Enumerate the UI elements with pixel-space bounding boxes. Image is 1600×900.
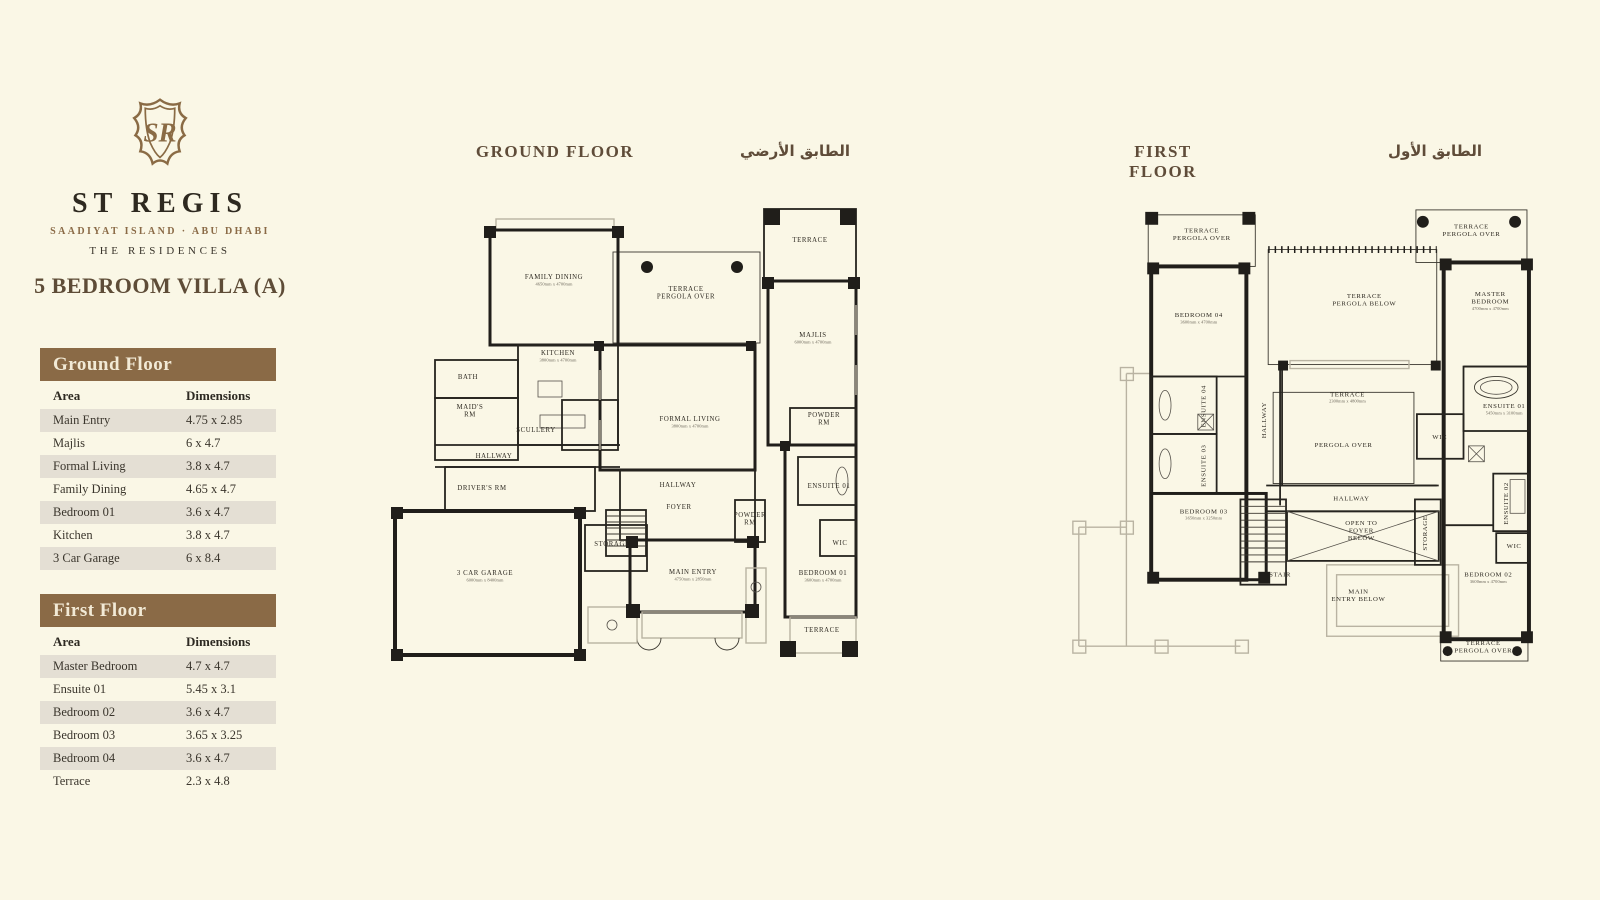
table-title: First Floor xyxy=(40,594,276,627)
room-label: ENSUITE 01 xyxy=(808,483,851,490)
room-label: TERRACEPERGOLA OVER xyxy=(657,286,715,301)
room-label: HALLWAY xyxy=(1261,402,1268,438)
table-row: Bedroom 033.65 x 3.25 xyxy=(40,724,276,747)
ground-floor-plan: FAMILY DINING4650mm x 4700mmTERRACEPERGO… xyxy=(390,195,885,670)
table-row: Family Dining4.65 x 4.7 xyxy=(40,478,276,501)
room-label: ENSUITE 04 xyxy=(1201,385,1208,427)
room-label: ENSUITE 02 xyxy=(1503,482,1510,524)
room-label: STORAGE xyxy=(594,541,629,548)
room-label: SCULLERY xyxy=(516,427,556,434)
area-cell: Ensuite 01 xyxy=(53,678,186,701)
room-label: TERRACE xyxy=(804,627,839,634)
area-cell: Bedroom 03 xyxy=(53,724,186,747)
table-row: Master Bedroom4.7 x 4.7 xyxy=(40,655,276,678)
ground-floor-heading-arabic: الطابق الأرضي xyxy=(730,142,850,160)
room-label: ENSUITE 015450mm x 3100mm xyxy=(1483,403,1525,415)
gf-room-labels: FAMILY DINING4650mm x 4700mmTERRACEPERGO… xyxy=(457,237,851,634)
room-label: DRIVER'S RM xyxy=(457,485,506,492)
room-label: BEDROOM 023600mm x 4700mm xyxy=(1464,572,1512,584)
room-label: PERGOLA OVER xyxy=(1315,442,1373,449)
brand-name: ST REGIS xyxy=(0,188,320,220)
area-cell: Kitchen xyxy=(53,524,186,547)
room-label: MAID'SRM xyxy=(457,404,484,419)
first-floor-heading-arabic: الطابق الأول xyxy=(1382,142,1482,160)
table-body: Master Bedroom4.7 x 4.7Ensuite 015.45 x … xyxy=(40,655,276,793)
table-row: Bedroom 023.6 x 4.7 xyxy=(40,701,276,724)
room-label: MASTERBEDROOM4700mm x 4700mm xyxy=(1471,291,1509,311)
room-label: BATH xyxy=(458,374,478,381)
room-label: HALLWAY xyxy=(660,482,697,489)
col-dimensions: Dimensions xyxy=(186,388,250,404)
area-cell: Master Bedroom xyxy=(53,655,186,678)
room-label: FORMAL LIVING3800mm x 4700mm xyxy=(660,416,721,429)
room-label: KITCHEN3800mm x 4700mm xyxy=(539,350,577,363)
brand-block: SR ST REGIS SAADIYAT ISLAND · ABU DHABI … xyxy=(0,96,320,257)
dimensions-cell: 3.8 x 4.7 xyxy=(186,524,230,547)
table-title: Ground Floor xyxy=(40,348,276,381)
room-label: OPEN TOFOYERBELOW xyxy=(1345,520,1377,542)
dimensions-cell: 4.65 x 4.7 xyxy=(186,478,236,501)
first-floor-heading: FIRST FLOOR xyxy=(1108,142,1218,182)
ground-floor-table: Ground Floor Area Dimensions Main Entry4… xyxy=(40,348,276,570)
dimensions-cell: 6 x 4.7 xyxy=(186,432,220,455)
dimensions-cell: 2.3 x 4.8 xyxy=(186,770,230,793)
first-floor-table: First Floor Area Dimensions Master Bedro… xyxy=(40,594,276,793)
table-row: Kitchen3.8 x 4.7 xyxy=(40,524,276,547)
dimensions-cell: 3.65 x 3.25 xyxy=(186,724,242,747)
ff-walls xyxy=(1148,210,1529,661)
room-label: STAIR xyxy=(1269,572,1291,579)
dimensions-cell: 4.7 x 4.7 xyxy=(186,655,230,678)
table-row: Bedroom 013.6 x 4.7 xyxy=(40,501,276,524)
room-label: MAIN ENTRY4750mm x 2850mm xyxy=(669,569,717,582)
table-row: Main Entry4.75 x 2.85 xyxy=(40,409,276,432)
room-label: MAJLIS6000mm x 4700mm xyxy=(794,332,832,345)
room-label: WIC xyxy=(1432,434,1447,441)
brand-tagline: THE RESIDENCES xyxy=(0,245,320,257)
table-body: Main Entry4.75 x 2.85Majlis6 x 4.7Formal… xyxy=(40,409,276,570)
first-floor-plan: TERRACEPERGOLA OVERBEDROOM 043600mm x 47… xyxy=(1040,198,1540,664)
area-cell: Main Entry xyxy=(53,409,186,432)
room-label: FAMILY DINING4650mm x 4700mm xyxy=(525,274,583,287)
table-row: Terrace2.3 x 4.8 xyxy=(40,770,276,793)
table-row: 3 Car Garage6 x 8.4 xyxy=(40,547,276,570)
room-label: TERRACE xyxy=(792,237,827,244)
room-label: TERRACEPERGOLA BELOW xyxy=(1332,293,1396,307)
room-label: STORAGE xyxy=(1422,516,1429,551)
room-label: ENSUITE 03 xyxy=(1201,444,1208,486)
crest-monogram: SR xyxy=(143,117,176,147)
page-title: 5 BEDROOM VILLA (A) xyxy=(0,273,320,299)
table-header-row: Area Dimensions xyxy=(40,627,276,655)
room-label: TERRACE2300mm x 4800mm xyxy=(1329,391,1366,403)
dimensions-cell: 3.8 x 4.7 xyxy=(186,455,230,478)
brochure-page: SR ST REGIS SAADIYAT ISLAND · ABU DHABI … xyxy=(0,0,1600,900)
dimensions-cell: 3.6 x 4.7 xyxy=(186,501,230,524)
area-cell: Bedroom 02 xyxy=(53,701,186,724)
area-cell: Bedroom 01 xyxy=(53,501,186,524)
ground-floor-heading: GROUND FLOOR xyxy=(470,142,640,162)
area-cell: Majlis xyxy=(53,432,186,455)
room-label: POWDERRM xyxy=(808,412,840,427)
room-label: 3 CAR GARAGE6000mm x 8400mm xyxy=(457,570,513,583)
gf-walls xyxy=(395,209,856,655)
room-label: WIC xyxy=(832,540,847,547)
room-label: TERRACEPERGOLA OVER xyxy=(1454,640,1512,654)
room-label: BEDROOM 043600mm x 4700mm xyxy=(1175,312,1223,324)
room-label: BEDROOM 033650mm x 3250mm xyxy=(1180,508,1228,520)
table-header-row: Area Dimensions xyxy=(40,381,276,409)
table-row: Formal Living3.8 x 4.7 xyxy=(40,455,276,478)
room-label: MAINENTRY BELOW xyxy=(1331,589,1385,603)
area-cell: Family Dining xyxy=(53,478,186,501)
room-label: HALLWAY xyxy=(1333,495,1369,502)
dimensions-cell: 6 x 8.4 xyxy=(186,547,220,570)
col-area: Area xyxy=(53,634,186,650)
area-cell: Terrace xyxy=(53,770,186,793)
room-label: BEDROOM 013600mm x 4700mm xyxy=(799,570,847,583)
area-cell: Formal Living xyxy=(53,455,186,478)
dimensions-cell: 3.6 x 4.7 xyxy=(186,701,230,724)
ff-room-labels: TERRACEPERGOLA OVERBEDROOM 043600mm x 47… xyxy=(1173,224,1526,655)
room-label: POWDERRM xyxy=(734,512,766,527)
col-dimensions: Dimensions xyxy=(186,634,250,650)
table-row: Ensuite 015.45 x 3.1 xyxy=(40,678,276,701)
col-area: Area xyxy=(53,388,186,404)
area-cell: 3 Car Garage xyxy=(53,547,186,570)
dimensions-cell: 5.45 x 3.1 xyxy=(186,678,236,701)
room-label: HALLWAY xyxy=(476,453,513,460)
room-label: TERRACEPERGOLA OVER xyxy=(1443,224,1501,238)
dimensions-cell: 3.6 x 4.7 xyxy=(186,747,230,770)
room-label: TERRACEPERGOLA OVER xyxy=(1173,228,1231,242)
brand-subtitle: SAADIYAT ISLAND · ABU DHABI xyxy=(0,226,320,237)
area-cell: Bedroom 04 xyxy=(53,747,186,770)
room-label: WIC xyxy=(1507,543,1522,550)
dimensions-cell: 4.75 x 2.85 xyxy=(186,409,242,432)
room-label: FOYER xyxy=(666,504,691,511)
st-regis-crest-icon: SR xyxy=(122,96,198,182)
table-row: Bedroom 043.6 x 4.7 xyxy=(40,747,276,770)
table-row: Majlis6 x 4.7 xyxy=(40,432,276,455)
